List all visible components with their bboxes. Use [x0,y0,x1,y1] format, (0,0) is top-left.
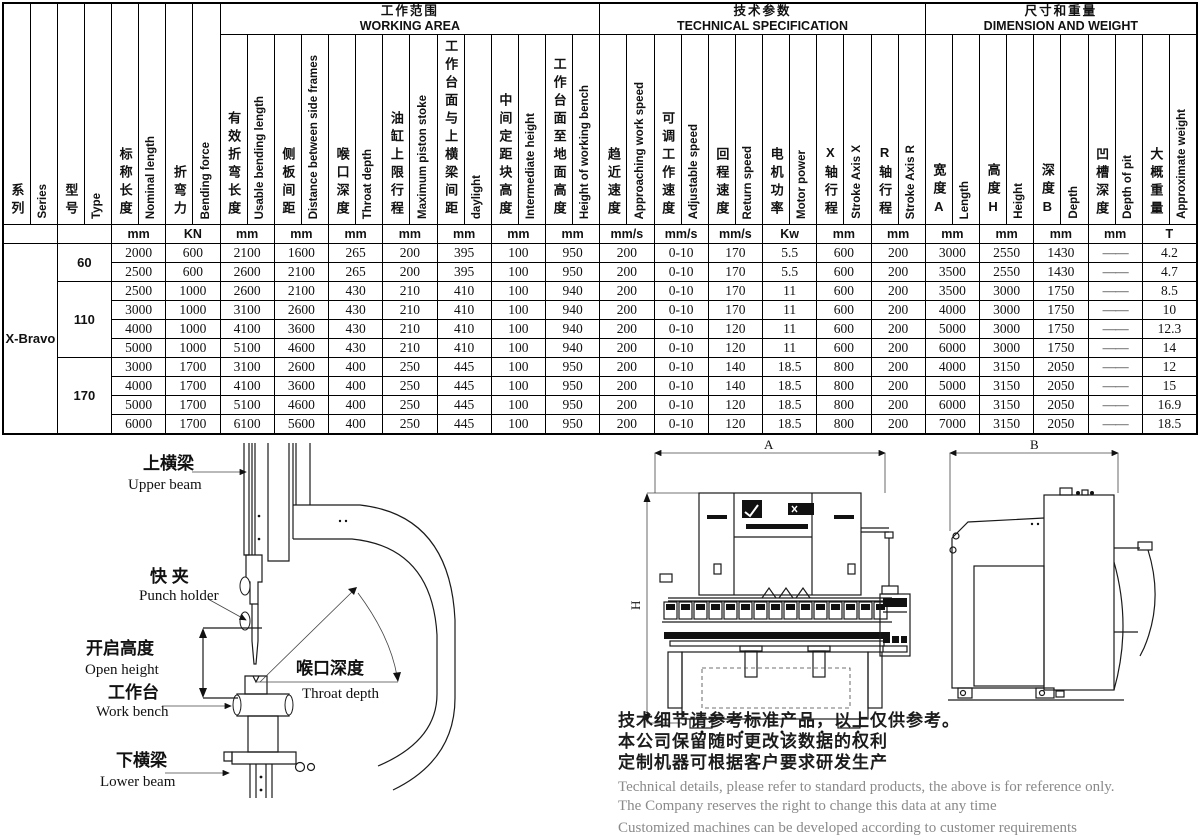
cell: —— [1088,301,1142,320]
throat-depth-label-zh: 喉口深度 [296,658,365,678]
unit-15: mm [817,225,871,244]
cell: 1430 [1034,244,1088,263]
cell: 800 [817,358,871,377]
cell: 950 [546,244,600,263]
col-header-6-en: Throat depth [356,35,383,225]
cell: 600 [817,282,871,301]
cell: 430 [329,339,383,358]
lower-beam-label-en: Lower beam [100,774,176,790]
cell: —— [1088,282,1142,301]
cell: 200 [600,244,654,263]
lower-beam-label-zh: 下横梁 [116,750,168,770]
cell: 3150 [980,358,1034,377]
col-header-4-en: Usable bending length [247,35,274,225]
spec-row: 30001000310026004302104101009402000-1017… [3,301,1197,320]
cell: 200 [871,358,925,377]
col-header-10-en: Height of working bench [573,35,600,225]
cell: 3600 [274,377,328,396]
cell: 940 [546,320,600,339]
cell: 3100 [220,358,274,377]
cell: 950 [546,377,600,396]
disclaimer-zh-line2: 本公司保留随时更改该数据的权利 [618,731,1193,752]
cell: 5100 [220,339,274,358]
col-header-4-zh: 有效折弯长度 [220,35,247,225]
cell: —— [1088,244,1142,263]
cell: 100 [491,244,545,263]
series-cell: X-Bravo [3,244,57,434]
disclaimer-block: 技术细节请参考标准产品，以上仅供参考。 本公司保留随时更改该数据的权利 定制机器… [618,710,1193,835]
cell: 5000 [925,377,979,396]
cell: 400 [329,358,383,377]
spec-row: 50001000510046004302104101009402000-1012… [3,339,1197,358]
cell: 8.5 [1142,282,1197,301]
cell: 2500 [112,263,166,282]
cell: —— [1088,415,1142,434]
cell: 2100 [274,263,328,282]
cell: 600 [817,244,871,263]
cell: 4100 [220,320,274,339]
cell: 11 [763,301,817,320]
disclaimer-zh-line3: 定制机器可根据客户要求研发生产 [618,752,1193,773]
cell: 120 [708,320,762,339]
unit-5: mm [274,225,328,244]
cell: 600 [817,263,871,282]
col-header-13-zh: 回程速度 [708,35,735,225]
cell: 2550 [980,263,1034,282]
cell: 5000 [112,396,166,415]
cell: 265 [329,263,383,282]
cell: 250 [383,415,437,434]
cell: 2000 [112,244,166,263]
col-header-14-en: Motor power [790,35,817,225]
cell: 4.2 [1142,244,1197,263]
open-height-label-zh: 开启高度 [86,638,155,658]
punch-holder-shape [240,555,262,664]
cell: 200 [600,339,654,358]
col-header-18-en: Height [1007,35,1034,225]
unit-11: mm/s [600,225,654,244]
col-header-9-en: Intermediate height [518,35,545,225]
cell: 410 [437,301,491,320]
unit-4: mm [220,225,274,244]
clamp-row [664,602,887,619]
cell: 0-10 [654,320,708,339]
col-header-0-en: Series [30,3,57,225]
unit-7: mm [383,225,437,244]
cell: 170 [708,244,762,263]
spec-table: 系列Series型号Type标称长度Nominal length折弯力Bendi… [2,2,1198,435]
cell: 3600 [274,320,328,339]
cell: 210 [383,301,437,320]
cell: 5.5 [763,263,817,282]
cell: 5100 [220,396,274,415]
col-header-12-zh: 可调工作速度 [654,35,681,225]
cell: 6000 [925,396,979,415]
cell: 120 [708,396,762,415]
cell: 250 [383,396,437,415]
col-header-19-en: Depth [1061,35,1088,225]
cell: 4000 [925,301,979,320]
cell: 3150 [980,396,1034,415]
cell: 5000 [925,320,979,339]
cell: 600 [817,320,871,339]
disclaimer-en-line3: Customized machines can be developed acc… [618,819,1193,835]
cell: 200 [871,320,925,339]
col-header-21-zh: 大概重量 [1142,35,1169,225]
cell: 0-10 [654,339,708,358]
cell: 200 [600,320,654,339]
cell: 7000 [925,415,979,434]
work-bench-label-en: Work bench [96,704,169,720]
cell: 1430 [1034,263,1088,282]
cell: 3000 [112,358,166,377]
cell: 1000 [166,282,220,301]
cell: 2600 [274,301,328,320]
cell: 0-10 [654,415,708,434]
cell: 2500 [112,282,166,301]
cell: 445 [437,358,491,377]
dim-b-label: B [1030,437,1039,452]
cell: 400 [329,377,383,396]
cell: 430 [329,282,383,301]
cell: 210 [383,282,437,301]
cell: 600 [817,339,871,358]
cell: 265 [329,244,383,263]
side-view-drawing: B [948,437,1155,700]
cell: 140 [708,358,762,377]
col-header-16-en: Stroke Axis R [898,35,925,225]
unit-18: mm [980,225,1034,244]
cell: 100 [491,320,545,339]
cell: 3000 [112,301,166,320]
col-header-18-zh: 高度H [980,35,1007,225]
cell: 1000 [166,301,220,320]
cell: 12 [1142,358,1197,377]
unit-8: mm [437,225,491,244]
cell: 100 [491,377,545,396]
cell: 11 [763,282,817,301]
cell: 200 [383,244,437,263]
spec-row: 40001700410036004002504451009502000-1014… [3,377,1197,396]
spec-row: 2500600260021002652003951009502000-10170… [3,263,1197,282]
upper-beam-shape [244,443,310,561]
c-frame-diagram: 上横梁 Upper beam 快 夹 Punch holder 开启高度 Ope… [40,436,500,835]
cell: 100 [491,358,545,377]
col-header-12-en: Adjustable speed [681,35,708,225]
col-header-11-zh: 趋近速度 [600,35,627,225]
col-header-8-en: daylight [464,35,491,225]
cell: 6100 [220,415,274,434]
cell: 3000 [980,301,1034,320]
cell: 18.5 [763,358,817,377]
unit-16: mm [871,225,925,244]
cell: —— [1088,263,1142,282]
spec-row: 40001000410036004302104101009402000-1012… [3,320,1197,339]
cell: 100 [491,396,545,415]
col-header-1-zh: 型号 [57,3,84,225]
cell: 950 [546,263,600,282]
cell: 2100 [220,244,274,263]
spec-row: 50001700510046004002504451009502000-1012… [3,396,1197,415]
cell: 200 [871,263,925,282]
cell: 1700 [166,377,220,396]
cell: 200 [600,263,654,282]
lower-beam-shape [224,752,315,798]
type-cell-60: 60 [57,244,111,282]
col-header-1-en: Type [84,3,111,225]
disclaimer-en-line2: The Company reserves the right to change… [618,797,1193,816]
cell: 170 [708,282,762,301]
cell: 940 [546,301,600,320]
cell: 0-10 [654,244,708,263]
cell: 1700 [166,396,220,415]
cell: 1600 [274,244,328,263]
cell: 800 [817,377,871,396]
cell: 430 [329,301,383,320]
cell: 18.5 [763,377,817,396]
cell: 200 [871,415,925,434]
cell: 18.5 [763,415,817,434]
cell: 3150 [980,377,1034,396]
cell: 600 [166,244,220,263]
cell: 170 [708,301,762,320]
cell: 410 [437,282,491,301]
col-header-19-zh: 深度B [1034,35,1061,225]
header-group-row: 系列Series型号Type标称长度Nominal length折弯力Bendi… [3,3,1197,35]
cell: 940 [546,282,600,301]
col-header-0-zh: 系列 [3,3,30,225]
cell: 0-10 [654,358,708,377]
cell: 100 [491,339,545,358]
cell: 410 [437,339,491,358]
spec-row: 17030001700310026004002504451009502000-1… [3,358,1197,377]
unit-10: mm [546,225,600,244]
cell: 170 [708,263,762,282]
col-header-15-zh: X轴行程 [817,35,844,225]
work-bench-label-zh: 工作台 [108,682,159,702]
cell: 10 [1142,301,1197,320]
cell: 200 [600,282,654,301]
cell: 200 [600,396,654,415]
cell: 120 [708,339,762,358]
cell: 6000 [112,415,166,434]
cell: 2050 [1034,415,1088,434]
unit-21: T [1142,225,1197,244]
cell: 4100 [220,377,274,396]
cell: 445 [437,396,491,415]
cell: 120 [708,415,762,434]
cell: 6000 [925,339,979,358]
cell: 5600 [274,415,328,434]
cell: 1750 [1034,320,1088,339]
col-header-14-zh: 电机功率 [763,35,790,225]
machine-views-drawing: A H [612,436,1200,736]
cell: 4000 [112,377,166,396]
dim-h-label: H [628,601,643,610]
cell: 600 [817,301,871,320]
c-frame-shape [293,505,455,790]
cell: 1000 [166,320,220,339]
cell: 210 [383,339,437,358]
col-header-20-zh: 凹槽深度 [1088,35,1115,225]
cell: 250 [383,377,437,396]
cell: 2600 [220,282,274,301]
cell: 100 [491,263,545,282]
cell: 5000 [112,339,166,358]
cell: 0-10 [654,282,708,301]
spec-row: 60001700610056004002504451009502000-1012… [3,415,1197,434]
cell: 0-10 [654,396,708,415]
cell: 400 [329,415,383,434]
unit-6: mm [329,225,383,244]
cell: 2600 [220,263,274,282]
col-header-11-en: Approaching work speed [627,35,654,225]
cell: 2600 [274,358,328,377]
cell: 1750 [1034,339,1088,358]
cell: 3100 [220,301,274,320]
group-header-0: 工作范围WORKING AREA [220,3,600,35]
cell: 2050 [1034,396,1088,415]
cell: 430 [329,320,383,339]
cell: 1700 [166,415,220,434]
cell: 410 [437,320,491,339]
cell: 18.5 [763,396,817,415]
cell: 200 [600,358,654,377]
cell: 11 [763,339,817,358]
cell: 1000 [166,339,220,358]
col-header-5-en: Distance between side frames [301,35,328,225]
cell: 2050 [1034,358,1088,377]
col-header-15-en: Stroke Axis X [844,35,871,225]
cell: 140 [708,377,762,396]
col-header-7-zh: 油缸上限行程 [383,35,410,225]
col-header-7-en: Maximum piston stoke [410,35,437,225]
cell: 200 [871,396,925,415]
cell: 600 [166,263,220,282]
punch-holder-label-en: Punch holder [139,588,219,604]
cell: 200 [600,377,654,396]
cell: —— [1088,320,1142,339]
cell: 3500 [925,263,979,282]
cell: 4000 [925,358,979,377]
cell: 395 [437,263,491,282]
type-cell-110: 110 [57,282,111,358]
upper-beam-label-zh: 上横梁 [143,453,195,473]
spec-row: X-Bravo602000600210016002652003951009502… [3,244,1197,263]
unit-1 [57,225,111,244]
cell: 200 [871,244,925,263]
cell: 12.3 [1142,320,1197,339]
col-header-2-zh: 标称长度 [112,3,139,225]
cell: 200 [383,263,437,282]
cell: 800 [817,415,871,434]
cell: 0-10 [654,301,708,320]
front-view-drawing: A H [628,437,910,734]
cell: 3000 [980,339,1034,358]
unit-2: mm [112,225,166,244]
col-header-16-zh: R轴行程 [871,35,898,225]
unit-14: Kw [763,225,817,244]
cell: 395 [437,244,491,263]
work-bench-shape [233,694,293,752]
disclaimer-en-line1: Technical details, please refer to stand… [618,778,1193,797]
spec-sheet-page: 系列Series型号Type标称长度Nominal length折弯力Bendi… [0,0,1200,835]
dim-a-label: A [764,437,774,452]
col-header-3-zh: 折弯力 [166,3,193,225]
cell: 210 [383,320,437,339]
unit-3: KN [166,225,220,244]
disclaimer-zh-line1: 技术细节请参考标准产品，以上仅供参考。 [618,710,1193,731]
cell: 800 [817,396,871,415]
col-header-3-en: Bending force [193,3,220,225]
unit-13: mm/s [708,225,762,244]
cell: 950 [546,358,600,377]
cell: —— [1088,358,1142,377]
cell: 4600 [274,339,328,358]
cell: 445 [437,415,491,434]
cell: 250 [383,358,437,377]
cell: 100 [491,282,545,301]
cell: 2100 [274,282,328,301]
col-header-9-zh: 中间定距块高度 [491,35,518,225]
cell: 950 [546,396,600,415]
cell: 3000 [925,244,979,263]
cell: 950 [546,415,600,434]
cell: 200 [871,339,925,358]
cell: 940 [546,339,600,358]
cell: 4600 [274,396,328,415]
group-header-1: 技术参数TECHNICAL SPECIFICATION [600,3,926,35]
cell: 1750 [1034,301,1088,320]
cell: 11 [763,320,817,339]
unit-row: mmKNmmmmmmmmmmmmmmmm/smm/smm/sKwmmmmmmmm… [3,225,1197,244]
unit-17: mm [925,225,979,244]
cell: 0-10 [654,263,708,282]
col-header-2-en: Nominal length [139,3,166,225]
col-header-5-zh: 侧板间距 [274,35,301,225]
unit-0 [3,225,57,244]
cell: 100 [491,301,545,320]
cell: 200 [600,415,654,434]
upper-beam-label-en: Upper beam [128,477,202,493]
group-header-2: 尺寸和重量DIMENSION AND WEIGHT [925,3,1197,35]
punch-holder-label-zh: 快 夹 [150,566,189,586]
cell: 4000 [112,320,166,339]
col-header-21-en: Approximate weight [1169,35,1197,225]
cell: —— [1088,377,1142,396]
cell: 2050 [1034,377,1088,396]
cell: 200 [871,282,925,301]
cell: 3000 [980,320,1034,339]
cell: 200 [871,301,925,320]
col-header-17-en: Length [952,35,979,225]
cell: 200 [600,301,654,320]
cell: 1700 [166,358,220,377]
cell: —— [1088,396,1142,415]
cell: 5.5 [763,244,817,263]
cell: 400 [329,396,383,415]
unit-9: mm [491,225,545,244]
col-header-6-zh: 喉口深度 [329,35,356,225]
cell: 3150 [980,415,1034,434]
cell: 200 [871,377,925,396]
open-height-label-en: Open height [85,662,160,678]
col-header-13-en: Return speed [735,35,762,225]
cell: 3500 [925,282,979,301]
unit-12: mm/s [654,225,708,244]
unit-19: mm [1034,225,1088,244]
cell: 14 [1142,339,1197,358]
